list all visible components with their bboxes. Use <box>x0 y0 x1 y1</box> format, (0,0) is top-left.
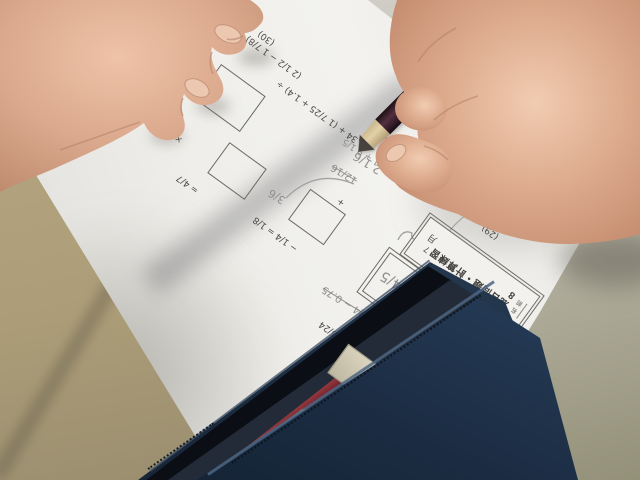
left-hand <box>0 0 340 220</box>
right-hand <box>360 0 640 290</box>
photo-scene: (30) (2 1/2 − 1 7/8) × × 1.25 = 1 13/15 … <box>0 0 640 480</box>
